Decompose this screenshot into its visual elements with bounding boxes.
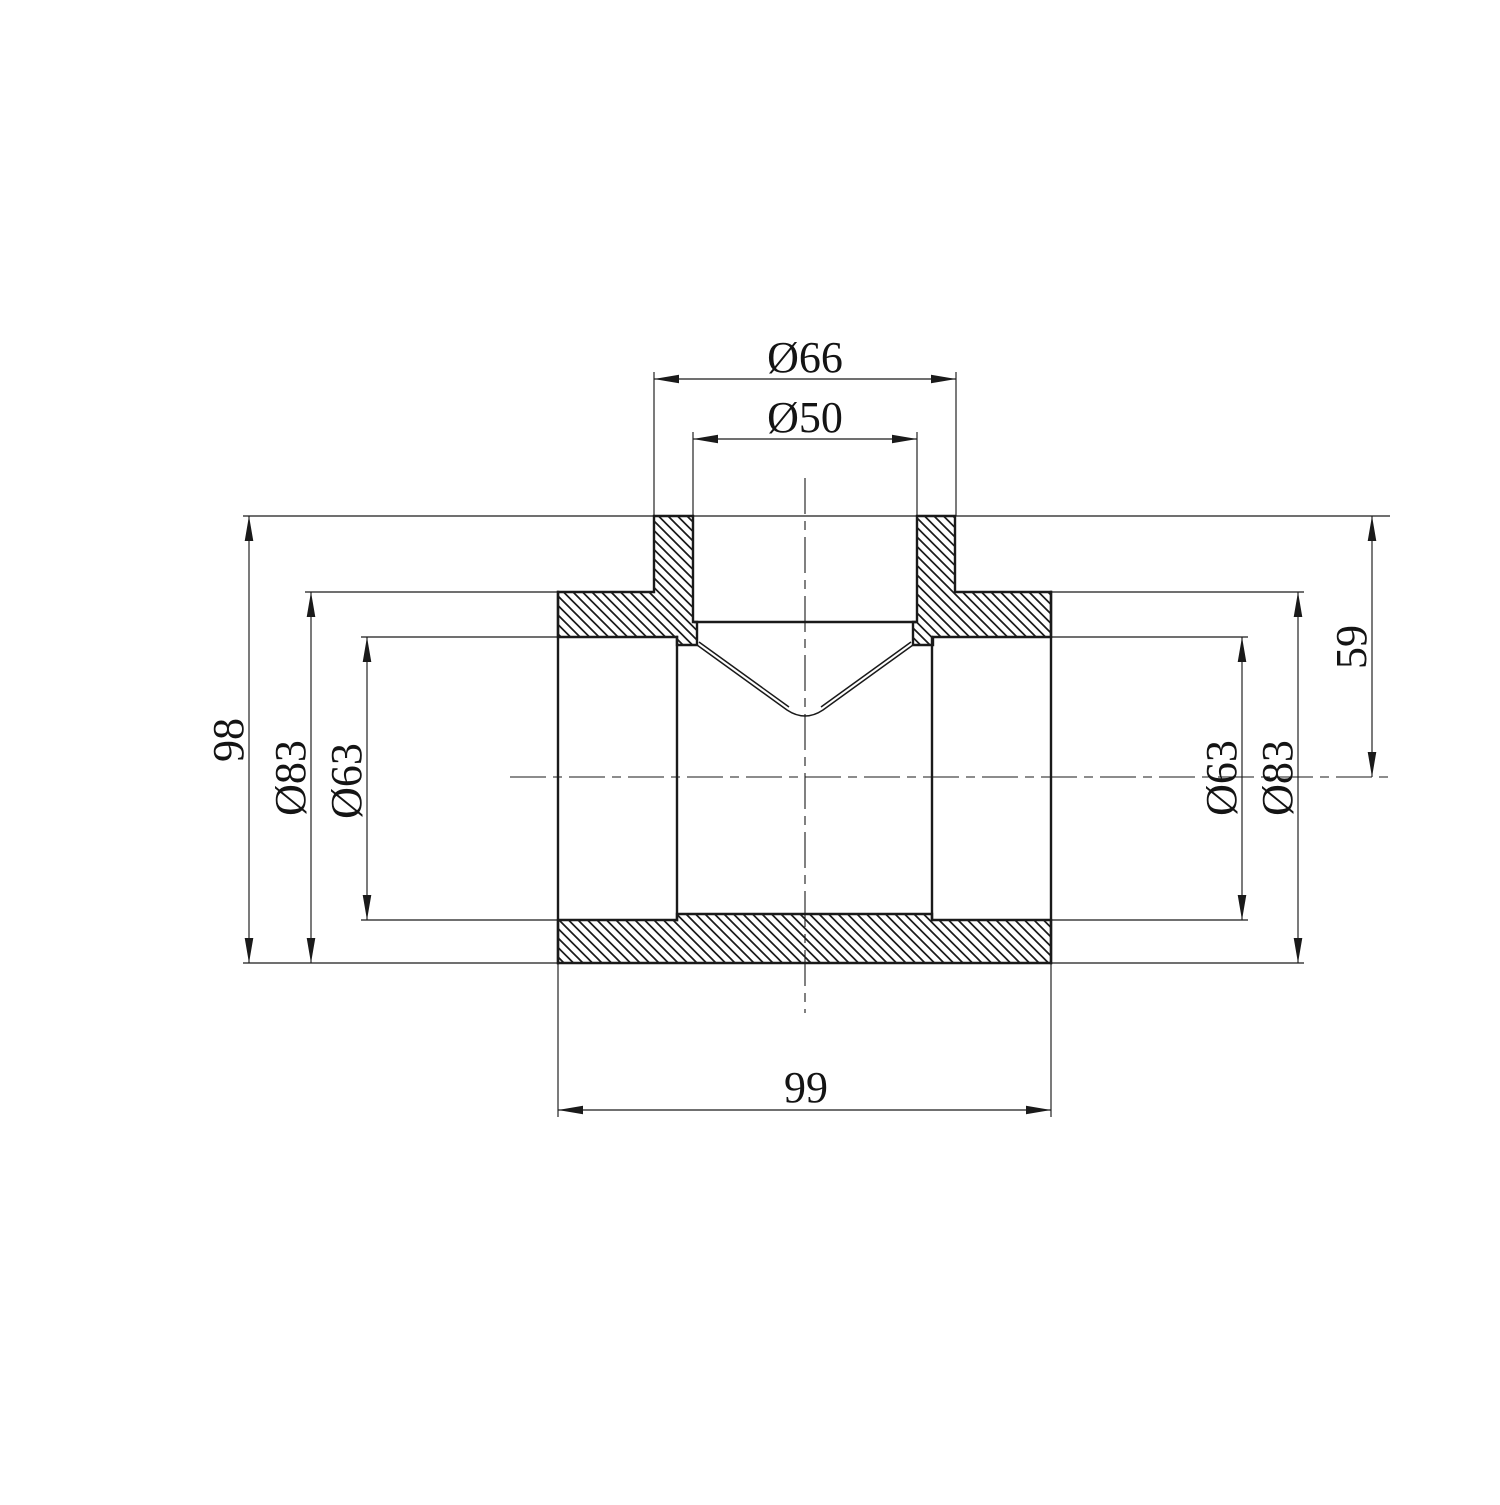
dimension-branch-axis-height: 59: [1327, 516, 1376, 777]
dim-label-right-bore-diameter: Ø63: [1197, 740, 1246, 816]
arrowhead-bottom: [1294, 938, 1303, 963]
arrowhead-bottom: [363, 895, 372, 920]
arrowhead-top: [1368, 516, 1377, 541]
dim-label-body-length: 99: [784, 1063, 828, 1112]
arrowhead-top: [307, 592, 316, 617]
arrowhead-top: [245, 516, 254, 541]
arrowhead-right: [892, 435, 917, 444]
drawing-canvas: Ø66 Ø50 98 Ø83 Ø63 59 Ø63: [0, 0, 1500, 1500]
dimension-left-bore-diameter: Ø63: [322, 637, 371, 920]
dim-label-branch-bore-diameter: Ø50: [767, 393, 843, 442]
dim-label-left-bore-diameter: Ø63: [322, 743, 371, 819]
dim-label-left-outer-diameter: Ø83: [266, 740, 315, 816]
dimension-branch-outer-diameter: Ø66: [654, 333, 956, 383]
tee-fitting-technical-drawing: Ø66 Ø50 98 Ø83 Ø63 59 Ø63: [0, 0, 1500, 1500]
arrowhead-bottom: [1368, 752, 1377, 777]
section-right-wall: [913, 516, 1051, 645]
dimension-right-bore-diameter: Ø63: [1197, 637, 1246, 920]
dim-label-branch-outer-diameter: Ø66: [767, 333, 843, 382]
arrowhead-left: [558, 1106, 583, 1115]
dimension-overall-height: 98: [204, 516, 253, 963]
arrowhead-top: [1294, 592, 1303, 617]
arrowhead-left: [693, 435, 718, 444]
dimension-body-length: 99: [558, 1063, 1051, 1114]
arrowhead-left: [654, 375, 679, 384]
dim-label-overall-height: 98: [204, 718, 253, 762]
arrowhead-top: [1238, 637, 1247, 662]
dim-label-branch-axis-height: 59: [1327, 625, 1376, 669]
arrowhead-top: [363, 637, 372, 662]
dim-label-right-outer-diameter: Ø83: [1253, 740, 1302, 816]
funnel-inner-edge-left: [699, 642, 789, 707]
arrowhead-bottom: [245, 938, 254, 963]
dimension-right-outer-diameter: Ø83: [1253, 592, 1302, 963]
arrowhead-right: [931, 375, 956, 384]
funnel-inner-edge-right: [821, 642, 911, 707]
arrowhead-bottom: [1238, 895, 1247, 920]
dimension-branch-bore-diameter: Ø50: [693, 393, 917, 443]
dimension-left-outer-diameter: Ø83: [266, 592, 315, 963]
arrowhead-right: [1026, 1106, 1051, 1115]
section-left-wall: [558, 516, 697, 645]
arrowhead-bottom: [307, 938, 316, 963]
